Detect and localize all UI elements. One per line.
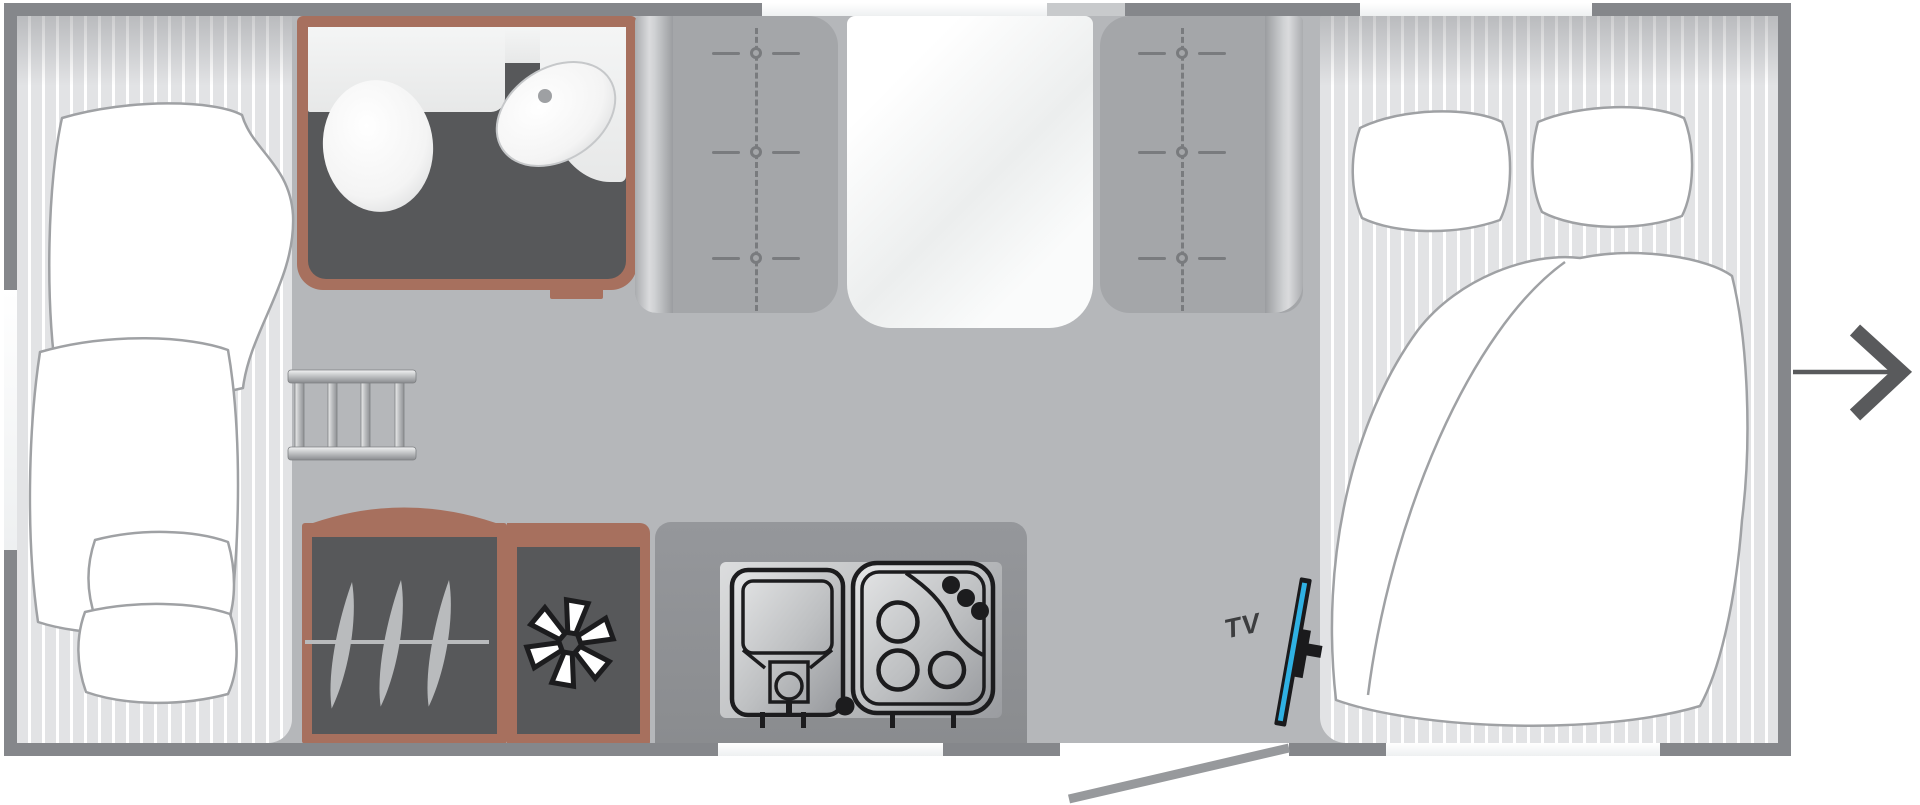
french-bed-bedding-icon [1332,107,1748,726]
toilet-icon [316,75,439,218]
bed-pillow-2 [1532,107,1692,227]
entrance-door-swing [1069,748,1289,799]
bed-pillow-1 [1353,111,1510,231]
knob-dot [957,589,975,607]
washbasin-icon [477,41,634,188]
entry-arrow-icon [1793,330,1901,415]
wardrobe-rail [305,640,489,644]
faucet-dot [538,89,552,103]
snowflake-icon [521,594,618,691]
tv-icon [1274,577,1334,731]
icon-overlay [0,0,1920,805]
hob-icon [853,563,993,713]
kitchen-sink-icon [732,570,843,716]
ladder-icon [288,370,416,460]
gas-knob-dot [836,697,855,716]
knob-dot [942,576,960,594]
clothes-hangers-icon [305,579,489,710]
floor-plan-canvas: TV [0,0,1920,805]
wardrobe-arch [302,508,507,538]
knob-dot [971,602,989,620]
bed-duvet [1332,253,1748,726]
bunk-pillow-2 [78,604,236,703]
bunk-bedding-icon [30,103,293,703]
